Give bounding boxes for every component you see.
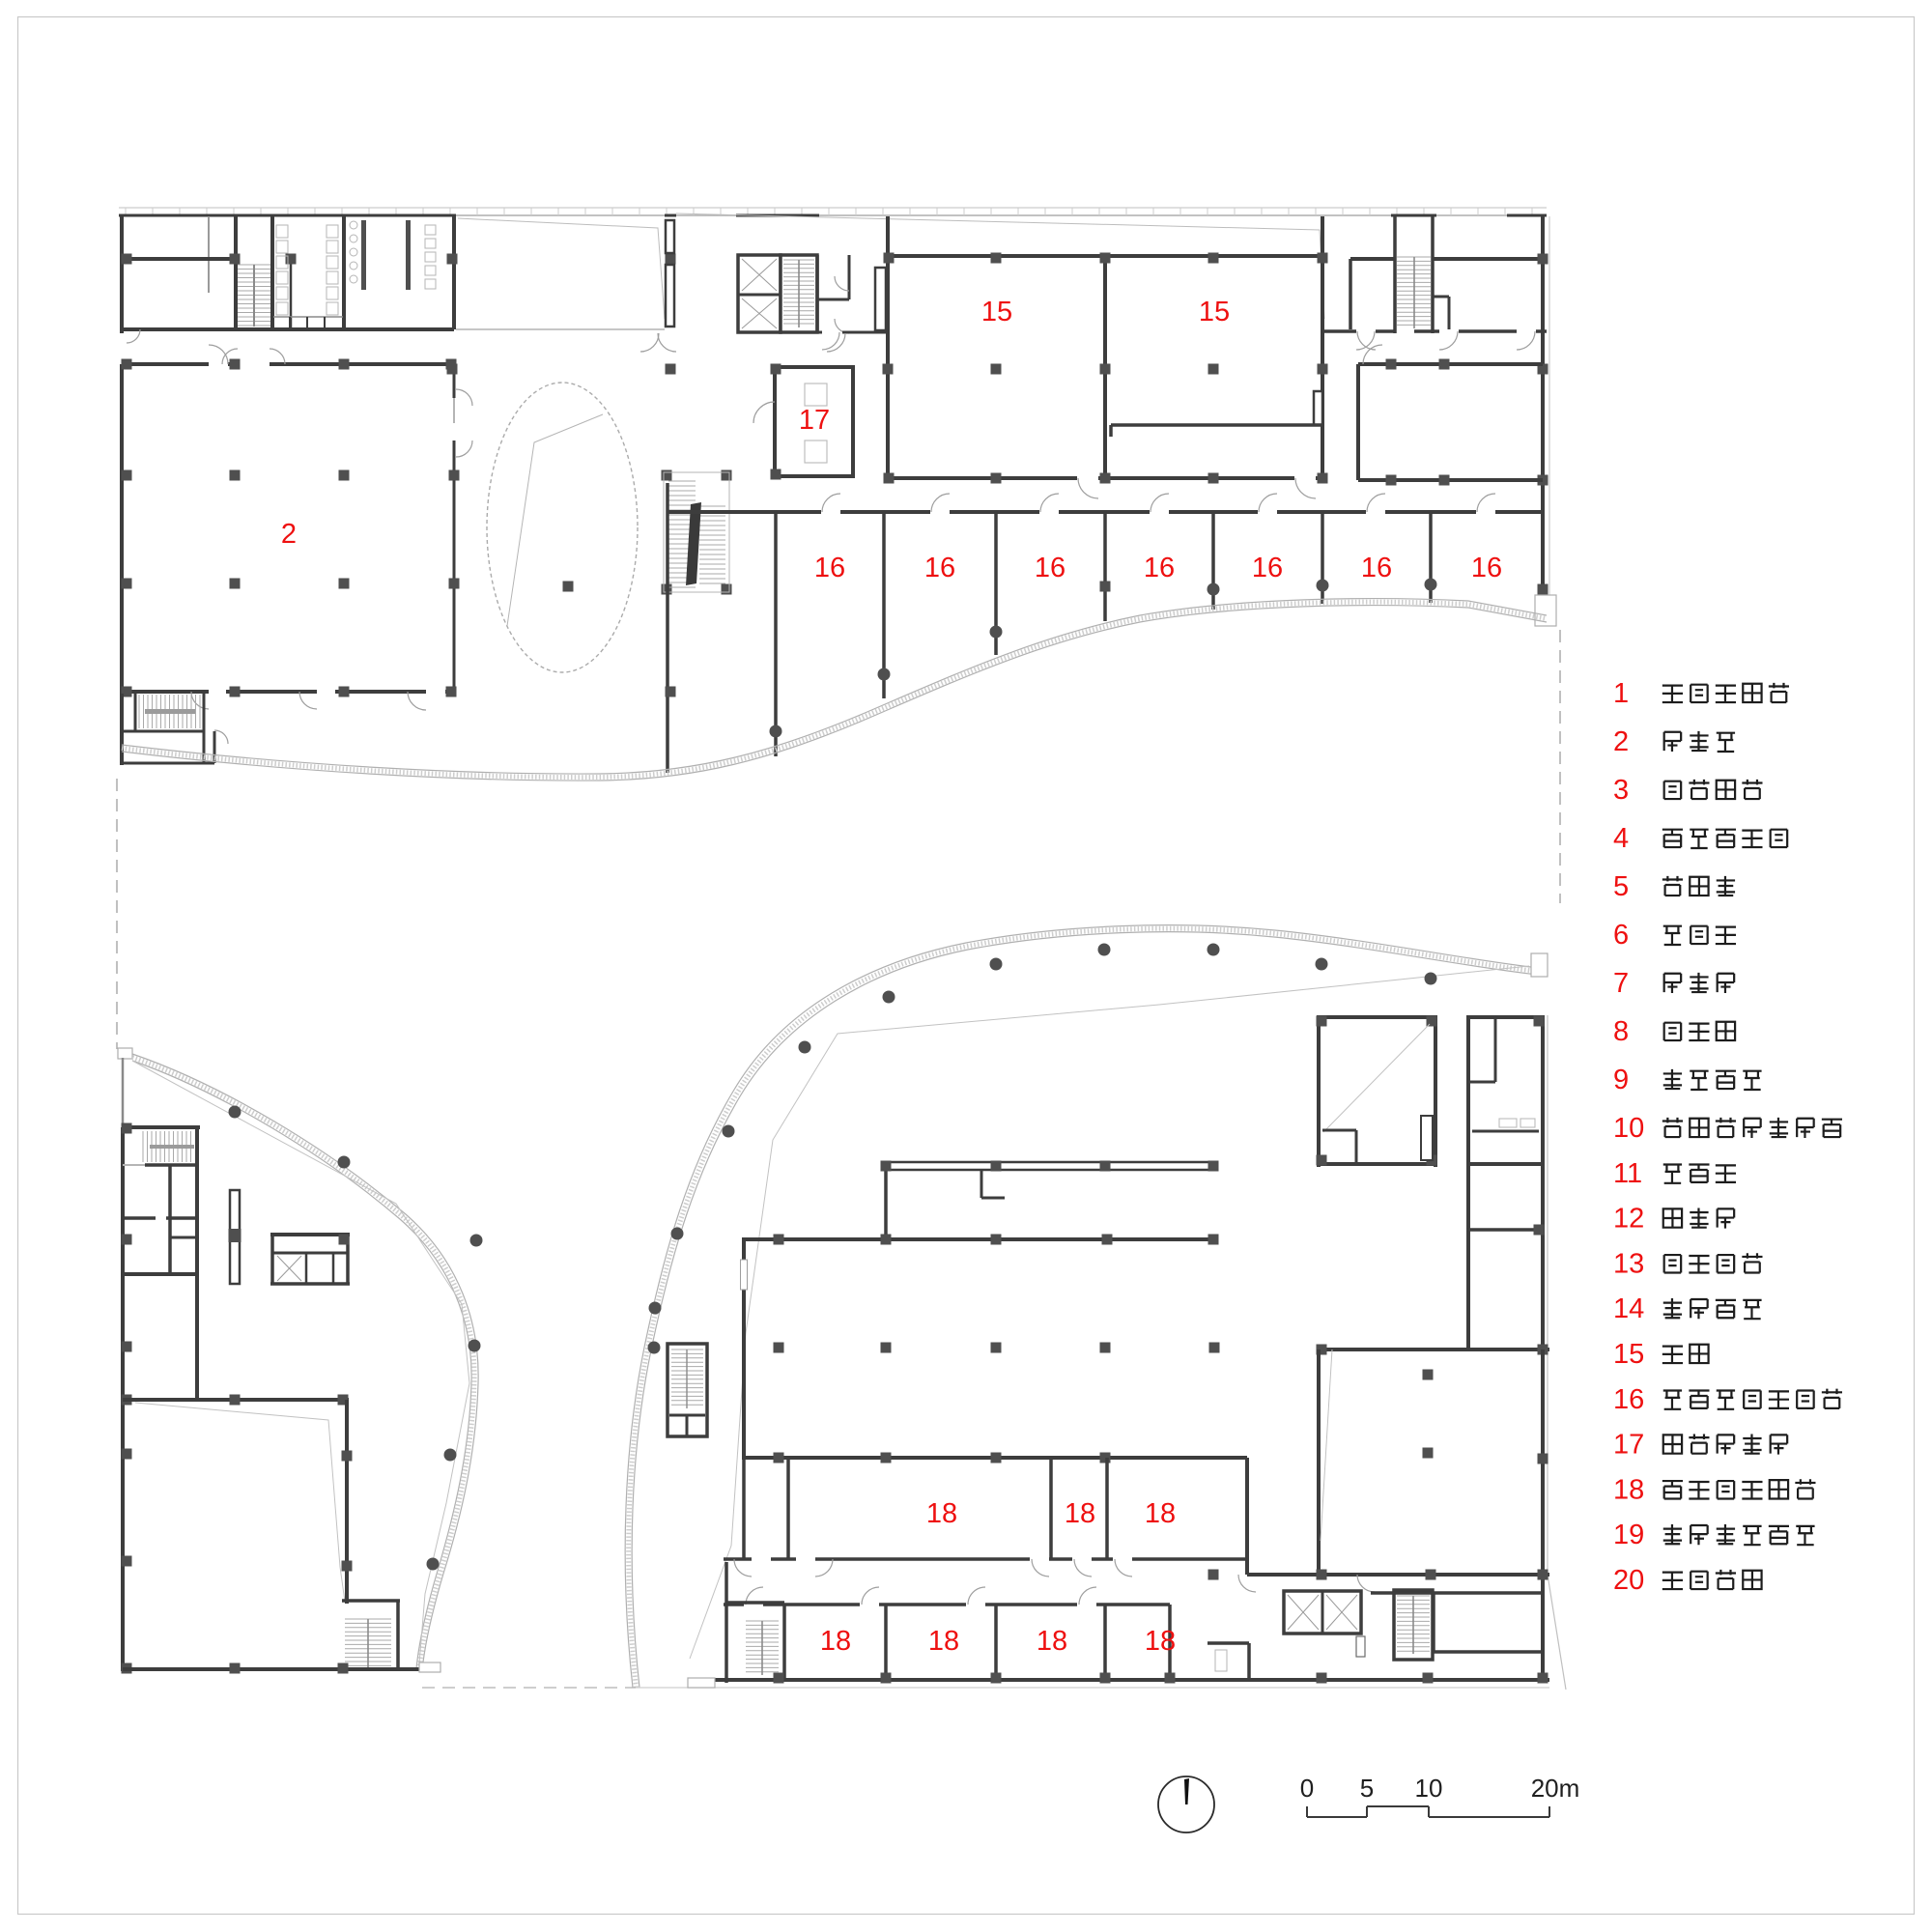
svg-text:4: 4 (1613, 823, 1629, 854)
svg-text:18: 18 (1037, 1626, 1067, 1657)
svg-text:20m: 20m (1531, 1774, 1580, 1803)
svg-text:6: 6 (1613, 920, 1629, 951)
svg-text:16: 16 (1613, 1384, 1644, 1415)
svg-text:16: 16 (924, 553, 955, 583)
svg-text:18: 18 (1145, 1498, 1176, 1529)
svg-text:17: 17 (799, 405, 830, 436)
svg-text:15: 15 (1199, 297, 1230, 327)
svg-text:9: 9 (1613, 1065, 1629, 1095)
svg-text:15: 15 (981, 297, 1012, 327)
svg-text:1: 1 (1613, 678, 1629, 709)
svg-text:8: 8 (1613, 1016, 1629, 1047)
svg-text:18: 18 (1145, 1626, 1176, 1657)
svg-text:18: 18 (928, 1626, 959, 1657)
svg-text:2: 2 (1613, 726, 1629, 757)
svg-text:18: 18 (820, 1626, 851, 1657)
svg-text:19: 19 (1613, 1520, 1644, 1550)
svg-text:17: 17 (1613, 1430, 1644, 1461)
svg-text:18: 18 (926, 1498, 957, 1529)
svg-text:16: 16 (1035, 553, 1065, 583)
svg-text:10: 10 (1415, 1774, 1443, 1803)
svg-text:2: 2 (281, 519, 297, 550)
svg-text:16: 16 (1471, 553, 1502, 583)
svg-text:0: 0 (1300, 1774, 1314, 1803)
svg-text:14: 14 (1613, 1293, 1644, 1324)
svg-text:16: 16 (1252, 553, 1283, 583)
svg-text:5: 5 (1360, 1774, 1374, 1803)
svg-text:13: 13 (1613, 1248, 1644, 1279)
svg-text:7: 7 (1613, 968, 1629, 999)
svg-text:10: 10 (1613, 1113, 1644, 1144)
svg-text:15: 15 (1613, 1339, 1644, 1370)
svg-text:18: 18 (1613, 1474, 1644, 1505)
svg-text:16: 16 (1144, 553, 1175, 583)
svg-text:11: 11 (1613, 1158, 1642, 1189)
svg-text:18: 18 (1065, 1498, 1095, 1529)
svg-text:3: 3 (1613, 775, 1629, 806)
svg-text:16: 16 (1361, 553, 1392, 583)
svg-text:12: 12 (1613, 1204, 1644, 1235)
svg-text:5: 5 (1613, 871, 1629, 902)
svg-text:16: 16 (814, 553, 845, 583)
svg-text:20: 20 (1613, 1565, 1644, 1596)
